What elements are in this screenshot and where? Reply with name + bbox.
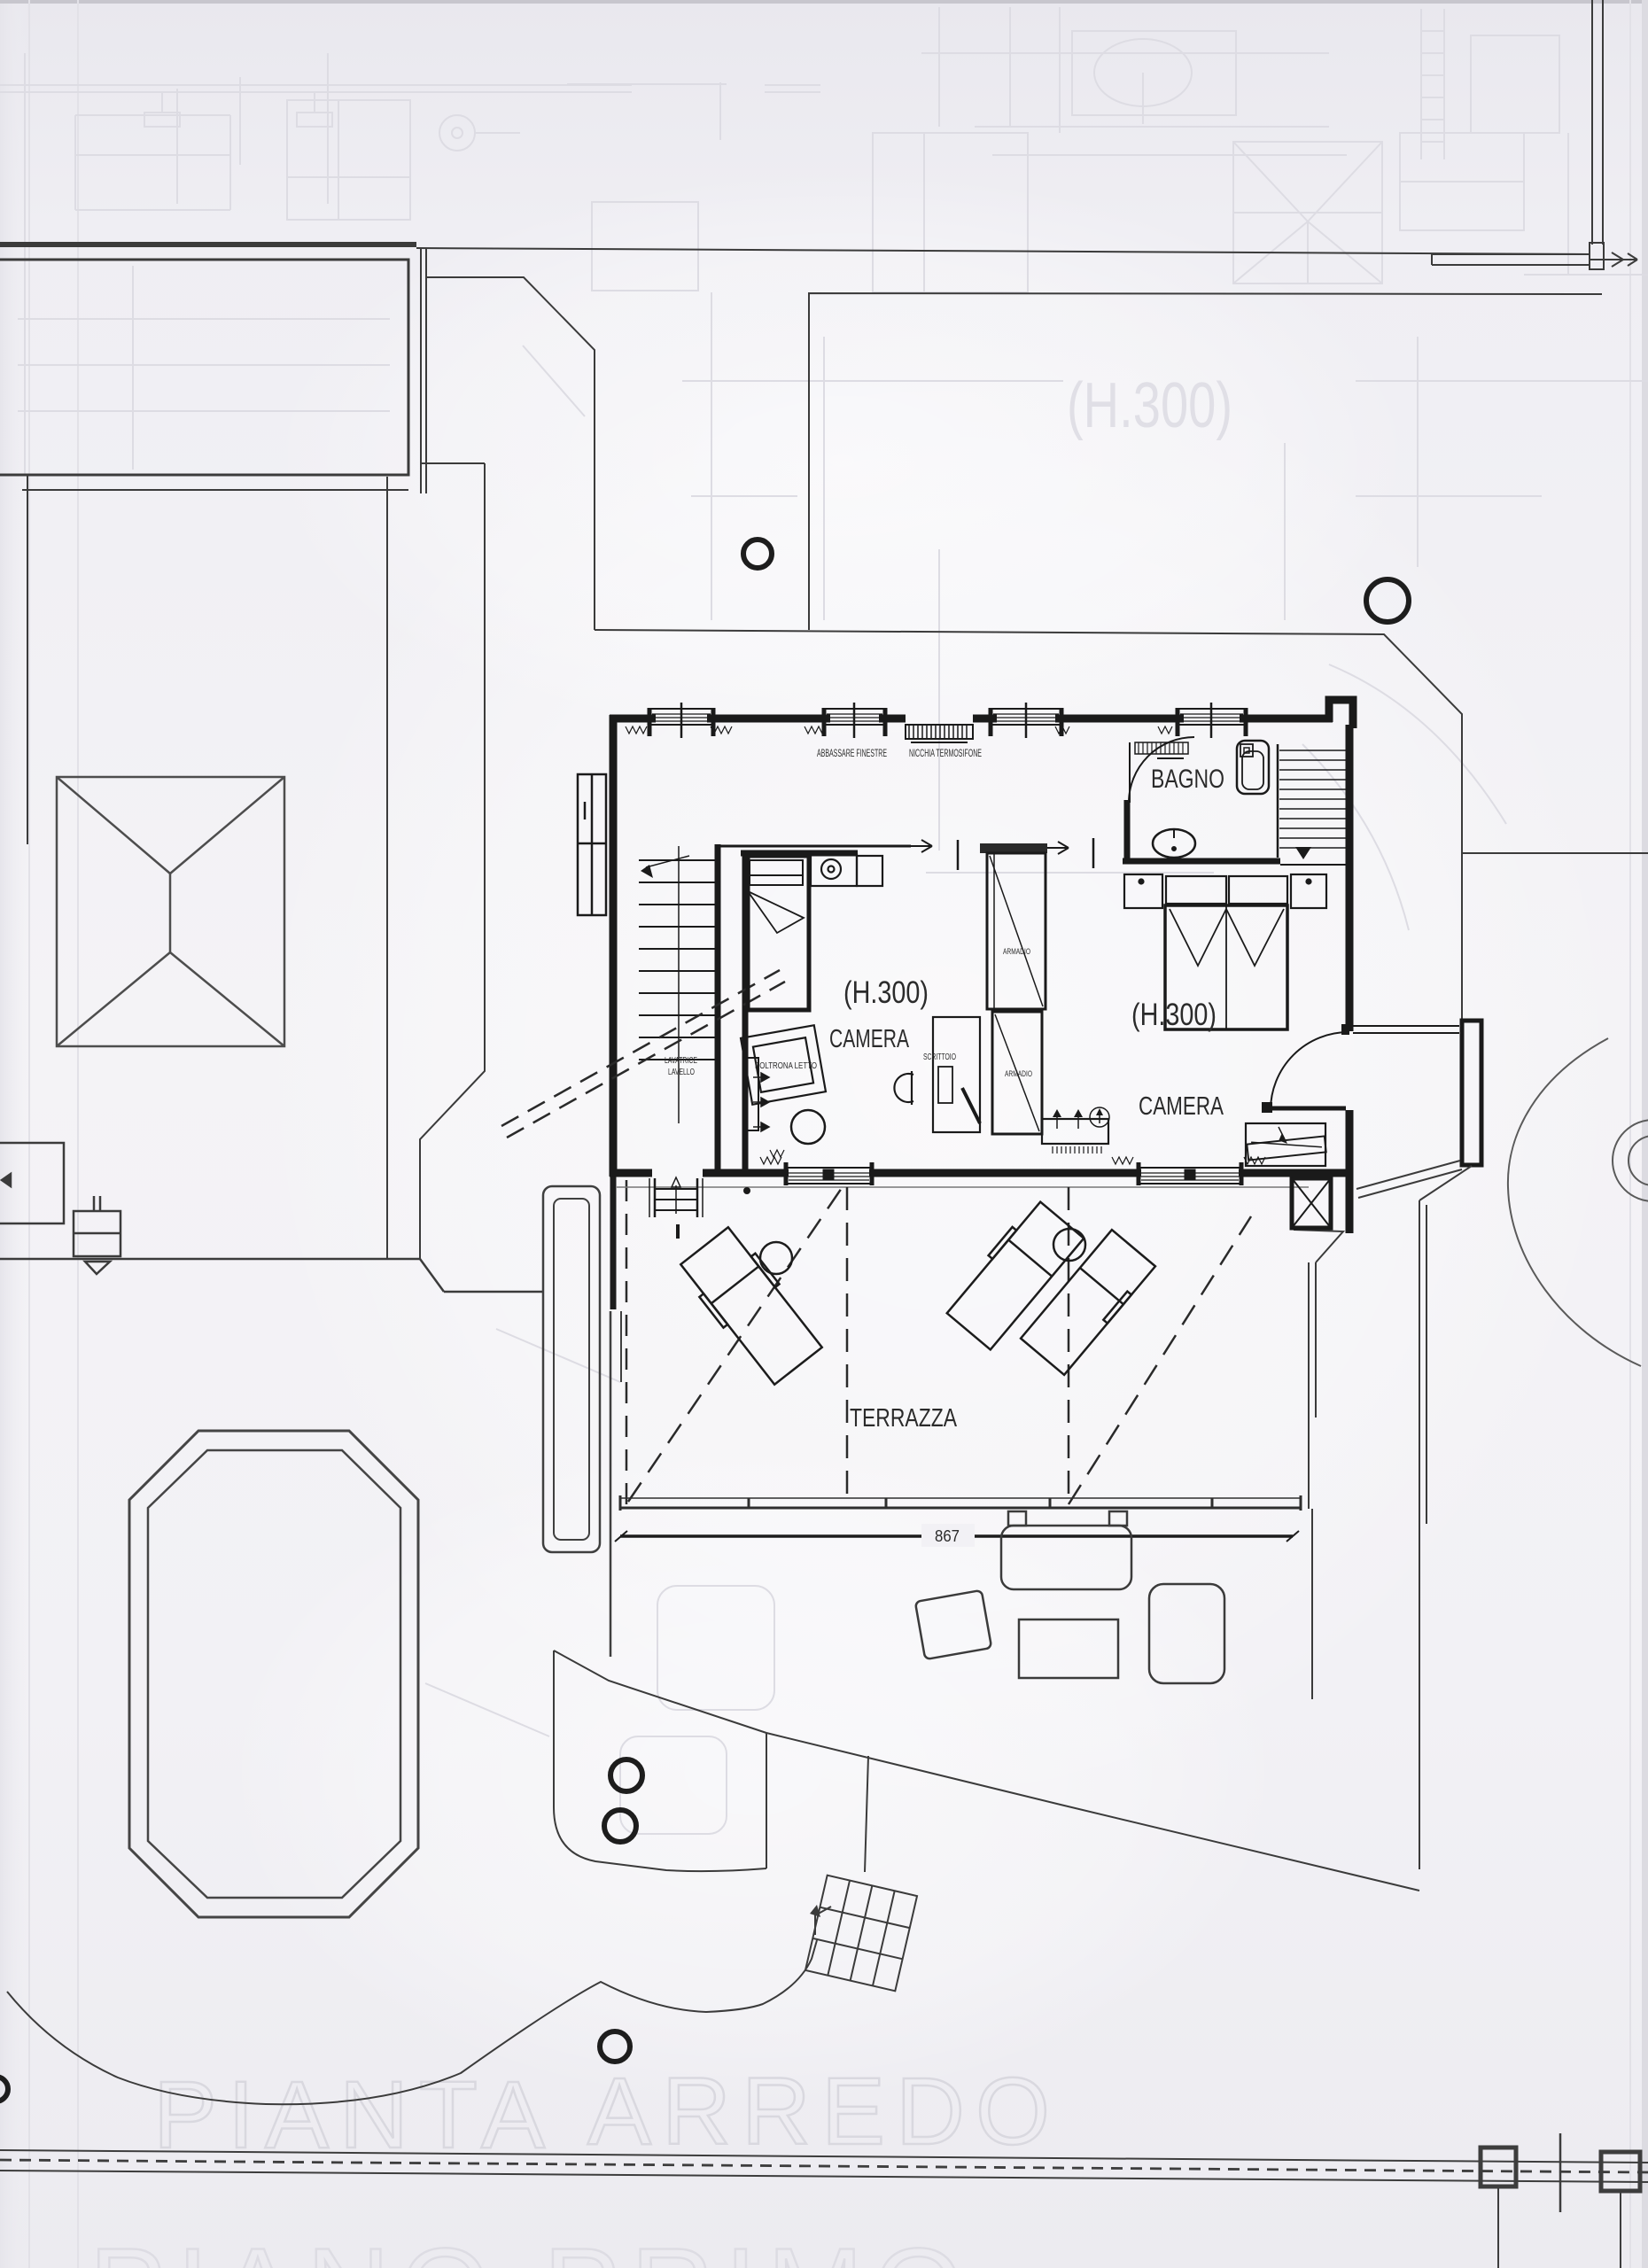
svg-text:ARMADIO: ARMADIO — [1005, 1069, 1032, 1078]
svg-text:(H.300): (H.300) — [1067, 370, 1232, 441]
svg-text:BAGNO: BAGNO — [1151, 765, 1224, 794]
svg-text:PIANO PRIMO: PIANO PRIMO — [89, 2224, 975, 2268]
svg-text:ARREDO: ARREDO — [587, 2057, 1061, 2164]
svg-text:(H.300): (H.300) — [1131, 998, 1217, 1032]
svg-text:SCRITTOIO: SCRITTOIO — [923, 1052, 956, 1062]
svg-text:ABBASSARE FINESTRE: ABBASSARE FINESTRE — [817, 747, 887, 759]
svg-text:CAMERA: CAMERA — [829, 1025, 909, 1053]
svg-text:NICCHIA TERMOSIFONE: NICCHIA TERMOSIFONE — [909, 747, 982, 759]
svg-text:CAMERA: CAMERA — [1139, 1092, 1224, 1121]
svg-text:867: 867 — [935, 1527, 960, 1545]
svg-text:LAVATRICE: LAVATRICE — [665, 1056, 697, 1066]
svg-text:TERRAZZA: TERRAZZA — [850, 1404, 958, 1433]
svg-text:(H.300): (H.300) — [843, 975, 929, 1010]
svg-text:LAVELLO: LAVELLO — [668, 1068, 695, 1077]
svg-text:POLTRONA LETTO: POLTRONA LETTO — [755, 1061, 817, 1071]
svg-text:ARMADIO: ARMADIO — [1003, 947, 1030, 956]
